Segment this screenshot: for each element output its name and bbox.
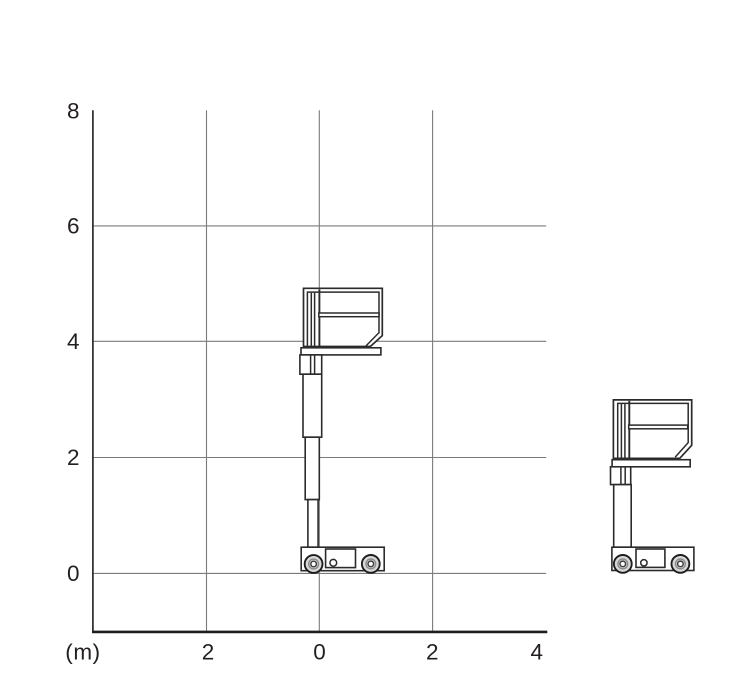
svg-text:8: 8: [67, 99, 80, 124]
svg-text:0: 0: [67, 561, 80, 586]
svg-text:2: 2: [202, 640, 215, 665]
svg-text:6: 6: [67, 213, 80, 238]
svg-text:0: 0: [313, 640, 326, 665]
svg-text:4: 4: [67, 329, 80, 354]
svg-text:2: 2: [426, 640, 439, 665]
svg-text:4: 4: [531, 640, 544, 665]
svg-text:2: 2: [67, 445, 80, 470]
svg-text:(m): (m): [65, 640, 101, 665]
